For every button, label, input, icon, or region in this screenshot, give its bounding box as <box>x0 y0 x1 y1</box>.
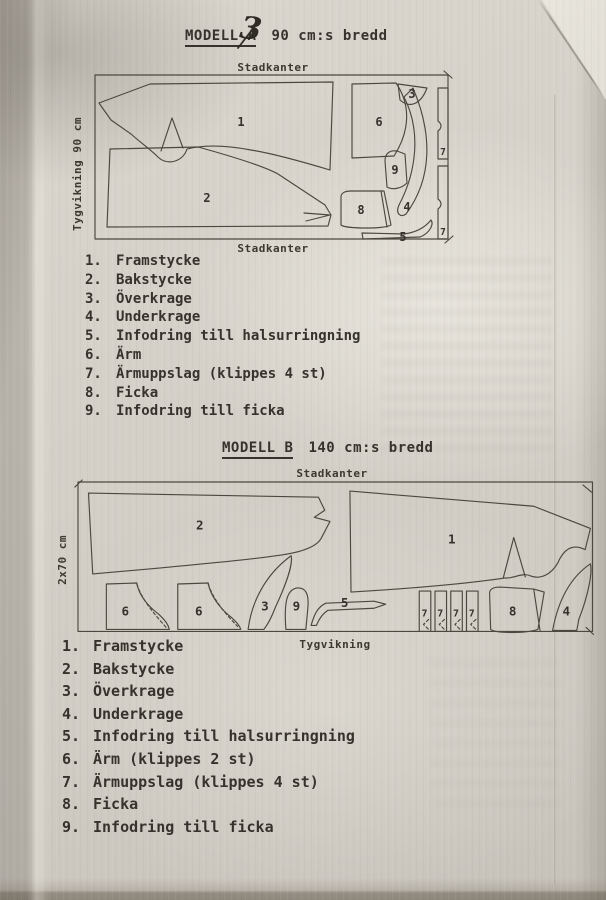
model-b-legend: 1.Framstycke 2.Bakstycke 3.Överkrage 4.U… <box>62 635 355 838</box>
piece-3-number: 3 <box>261 599 269 613</box>
legend-number: 5. <box>62 725 84 748</box>
model-a-cutting-diagram: Stadkanter Stadkanter Tygvikning 90 cm 1… <box>55 56 470 260</box>
piece-1-number: 1 <box>448 533 456 547</box>
legend-number: 1. <box>85 252 107 271</box>
piece-8-number: 8 <box>509 605 517 619</box>
legend-item: 7.Ärmuppslag (klippes 4 st) <box>62 771 355 794</box>
legend-label: Underkrage <box>93 703 183 726</box>
model-b-width-label: 140 cm:s bredd <box>308 440 433 456</box>
legend-item: 2.Bakstycke <box>62 658 355 681</box>
legend-label: Infodring till ficka <box>93 816 274 839</box>
legend-item: 8.Ficka <box>85 384 360 403</box>
legend-number: 9. <box>85 402 107 421</box>
legend-number: 8. <box>62 793 84 816</box>
legend-label: Infodring till halsurringning <box>93 725 355 748</box>
piece-2-outline <box>107 147 331 227</box>
legend-label: Framstycke <box>93 635 183 658</box>
legend-number: 4. <box>85 308 107 327</box>
legend-label: Underkrage <box>116 308 200 327</box>
piece-6a-seamline <box>137 584 166 627</box>
legend-item: 8.Ficka <box>62 793 355 816</box>
piece-8-outline <box>341 191 391 228</box>
legend-number: 2. <box>85 271 107 290</box>
legend-number: 6. <box>62 748 84 771</box>
piece-6b-number: 6 <box>195 605 203 619</box>
piece-5-outline <box>362 220 432 239</box>
piece-5-number: 5 <box>399 230 406 244</box>
piece-6-number: 6 <box>375 115 382 129</box>
model-b-title-text: MODELL B <box>222 440 293 459</box>
photographed-page: MODELL A90 cm:s bredd 3 Stadkanter Stadk… <box>0 0 606 900</box>
legend-number: 7. <box>85 365 107 384</box>
piece-6b-outline <box>178 583 241 629</box>
legend-number: 1. <box>62 635 84 658</box>
piece-9-number: 9 <box>293 599 301 613</box>
legend-item: 9.Infodring till ficka <box>62 816 355 839</box>
piece-7c-number: 7 <box>453 608 459 619</box>
legend-label: Bakstycke <box>116 271 192 290</box>
legend-item: 5.Infodring till halsurringning <box>85 327 360 346</box>
legend-label: Ärmuppslag (klippes 4 st) <box>116 365 327 384</box>
piece-3-number: 3 <box>408 87 415 101</box>
handwritten-3-annotation: 3 <box>231 6 271 52</box>
ink-bleedthrough <box>382 258 552 458</box>
piece-1-dart <box>161 118 183 151</box>
fabric-rect <box>95 75 448 239</box>
legend-item: 1.Framstycke <box>85 252 360 271</box>
piece-7b-number: 7 <box>440 227 446 238</box>
model-a-width-label: 90 cm:s bredd <box>271 28 387 44</box>
fold-label: Tygvikning 90 cm <box>71 117 84 231</box>
legend-item: 4.Underkrage <box>85 308 360 327</box>
page-corner-fold <box>466 0 606 110</box>
legend-number: 8. <box>85 384 107 403</box>
model-a-title: MODELL A90 cm:s bredd <box>185 28 388 44</box>
legend-label: Ärm <box>116 346 141 365</box>
piece-4-number: 4 <box>403 200 410 214</box>
legend-number: 4. <box>62 703 84 726</box>
piece-7b-number: 7 <box>437 608 443 619</box>
piece-4-outline <box>553 564 591 631</box>
piece-1-outline <box>350 491 590 592</box>
fold-width-label: 2x70 cm <box>56 535 69 585</box>
legend-item: 9.Infodring till ficka <box>85 402 360 421</box>
legend-number: 2. <box>62 658 84 681</box>
piece-2-number: 2 <box>203 191 210 205</box>
legend-label: Överkrage <box>93 680 174 703</box>
legend-item: 3.Överkrage <box>85 290 360 309</box>
piece-9-number: 9 <box>391 163 398 177</box>
legend-number: 5. <box>85 327 107 346</box>
legend-item: 2.Bakstycke <box>85 271 360 290</box>
piece-1-number: 1 <box>237 115 244 129</box>
piece-7a-number: 7 <box>440 147 446 158</box>
piece-2-outline <box>89 493 331 574</box>
piece-1-dart <box>503 538 525 578</box>
legend-label: Bakstycke <box>93 658 174 681</box>
piece-7a-number: 7 <box>421 608 427 619</box>
piece-7d-number: 7 <box>469 608 475 619</box>
piece-4-number: 4 <box>562 605 570 619</box>
ink-bleedthrough <box>430 660 560 810</box>
legend-label: Ficka <box>116 384 158 403</box>
legend-item: 1.Framstycke <box>62 635 355 658</box>
piece-2-number: 2 <box>196 519 204 533</box>
legend-label: Ärm (klippes 2 st) <box>93 748 256 771</box>
model-a-legend: 1.Framstycke 2.Bakstycke 3.Överkrage 4.U… <box>85 252 360 421</box>
legend-item: 6.Ärm <box>85 346 360 365</box>
legend-label: Ficka <box>93 793 138 816</box>
legend-item: 5.Infodring till halsurringning <box>62 725 355 748</box>
legend-label: Infodring till ficka <box>116 402 285 421</box>
legend-label: Infodring till halsurringning <box>116 327 360 346</box>
piece-5-number: 5 <box>341 596 349 610</box>
legend-number: 6. <box>85 346 107 365</box>
selvage-label-top: Stadkanter <box>237 61 308 74</box>
selvage-label-top: Stadkanter <box>296 467 367 480</box>
legend-number: 9. <box>62 816 84 839</box>
legend-item: 3.Överkrage <box>62 680 355 703</box>
legend-item: 6.Ärm (klippes 2 st) <box>62 748 355 771</box>
piece-6a-number: 6 <box>121 605 129 619</box>
model-b-cutting-diagram: Stadkanter Tygvikning 2x70 cm 2 1 6 6 3 <box>50 460 606 658</box>
piece-6b-seamline <box>208 584 237 626</box>
piece-8-number: 8 <box>357 203 364 217</box>
piece-1-outline <box>99 82 333 170</box>
legend-number: 3. <box>85 290 107 309</box>
piece-6a-outline <box>106 583 169 629</box>
legend-number: 7. <box>62 771 84 794</box>
piece-4-outline <box>398 88 427 216</box>
piece-8-outline <box>490 587 545 632</box>
legend-number: 3. <box>62 680 84 703</box>
piece-2-dart <box>304 213 330 221</box>
legend-label: Ärmuppslag (klippes 4 st) <box>93 771 319 794</box>
model-b-title: MODELL B140 cm:s bredd <box>222 440 433 456</box>
legend-label: Framstycke <box>116 252 200 271</box>
legend-item: 7.Ärmuppslag (klippes 4 st) <box>85 365 360 384</box>
legend-label: Överkrage <box>116 290 192 309</box>
legend-item: 4.Underkrage <box>62 703 355 726</box>
